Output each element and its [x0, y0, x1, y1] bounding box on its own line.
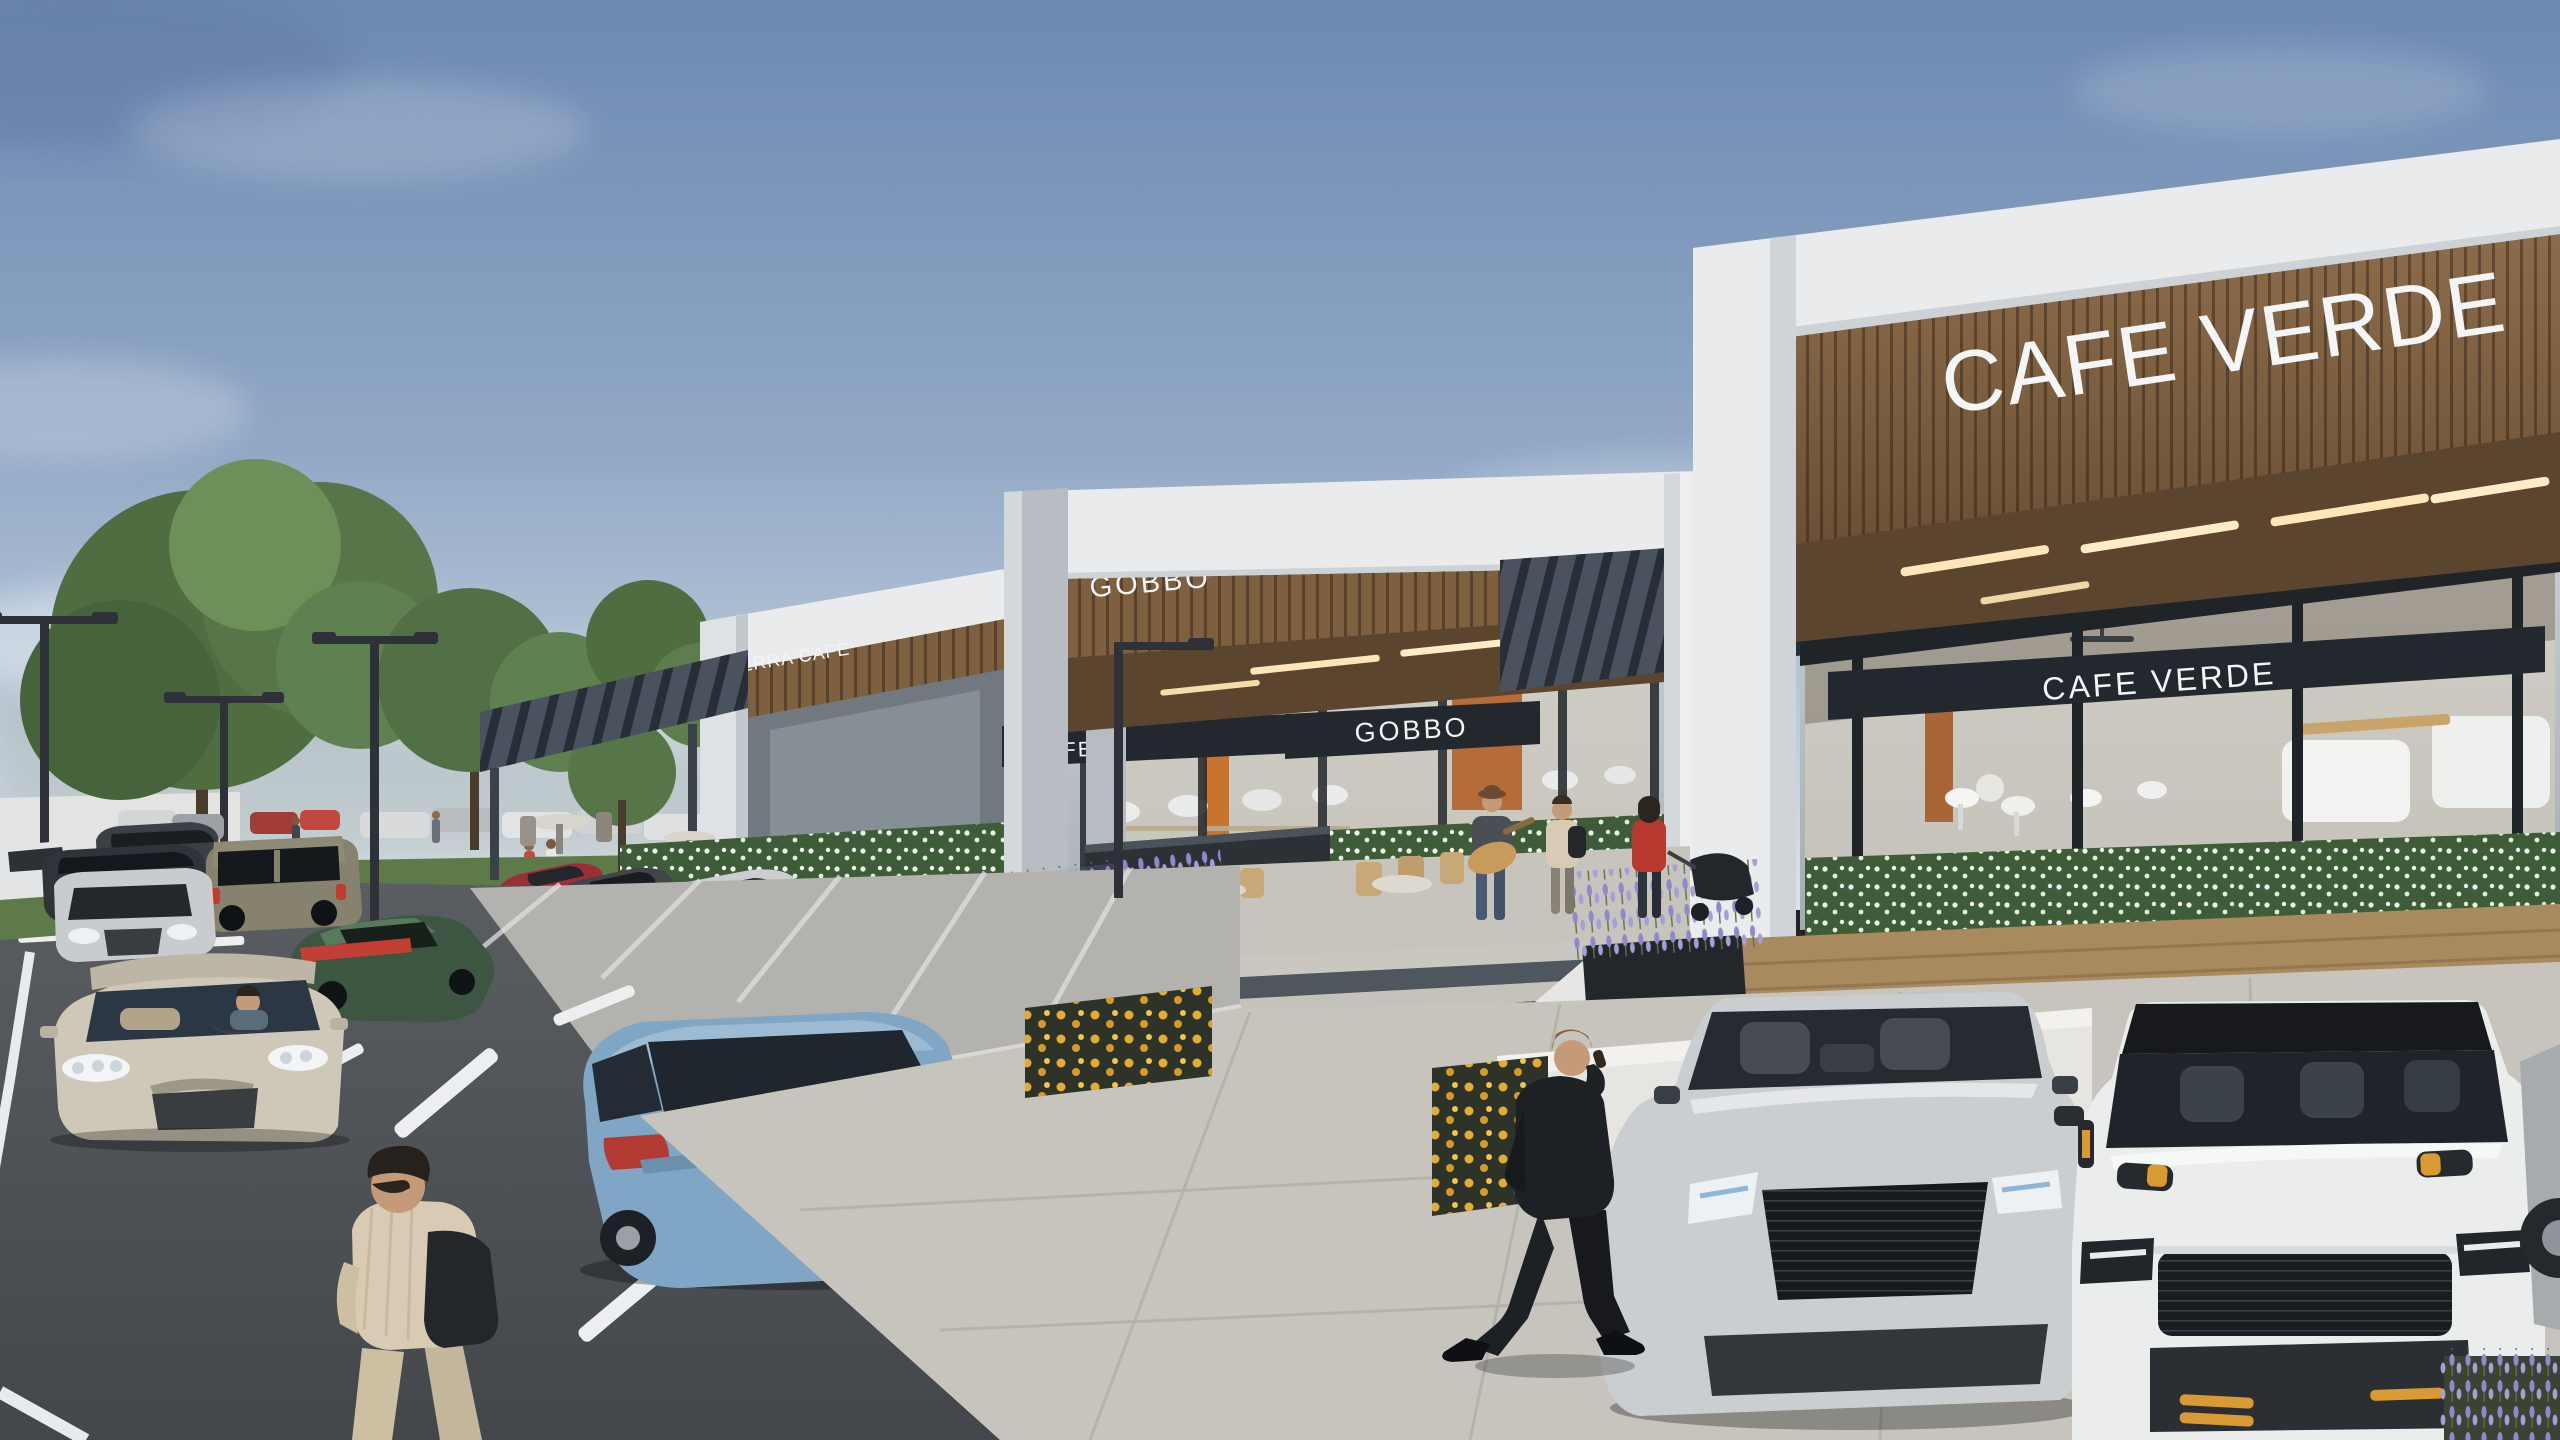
scene-canvas: TERRA CAFE CAFE GOBBO: [0, 0, 2560, 1440]
svg-text:GOBBO: GOBBO: [1354, 712, 1469, 748]
silver-audi-sedan-queue: [54, 868, 216, 962]
gobbo-band-sign: GOBBO: [1354, 712, 1469, 748]
cafe-verde-building: CAFE VERDE CAFE VERDE: [1680, 139, 2560, 1044]
military-utility-vehicle: [206, 836, 362, 932]
suv-cabin: [2106, 1050, 2508, 1148]
architectural-rendering: TERRA CAFE CAFE GOBBO: [0, 0, 2560, 1440]
backpack: [424, 1231, 498, 1348]
lavender-corner: [2440, 1348, 2560, 1440]
